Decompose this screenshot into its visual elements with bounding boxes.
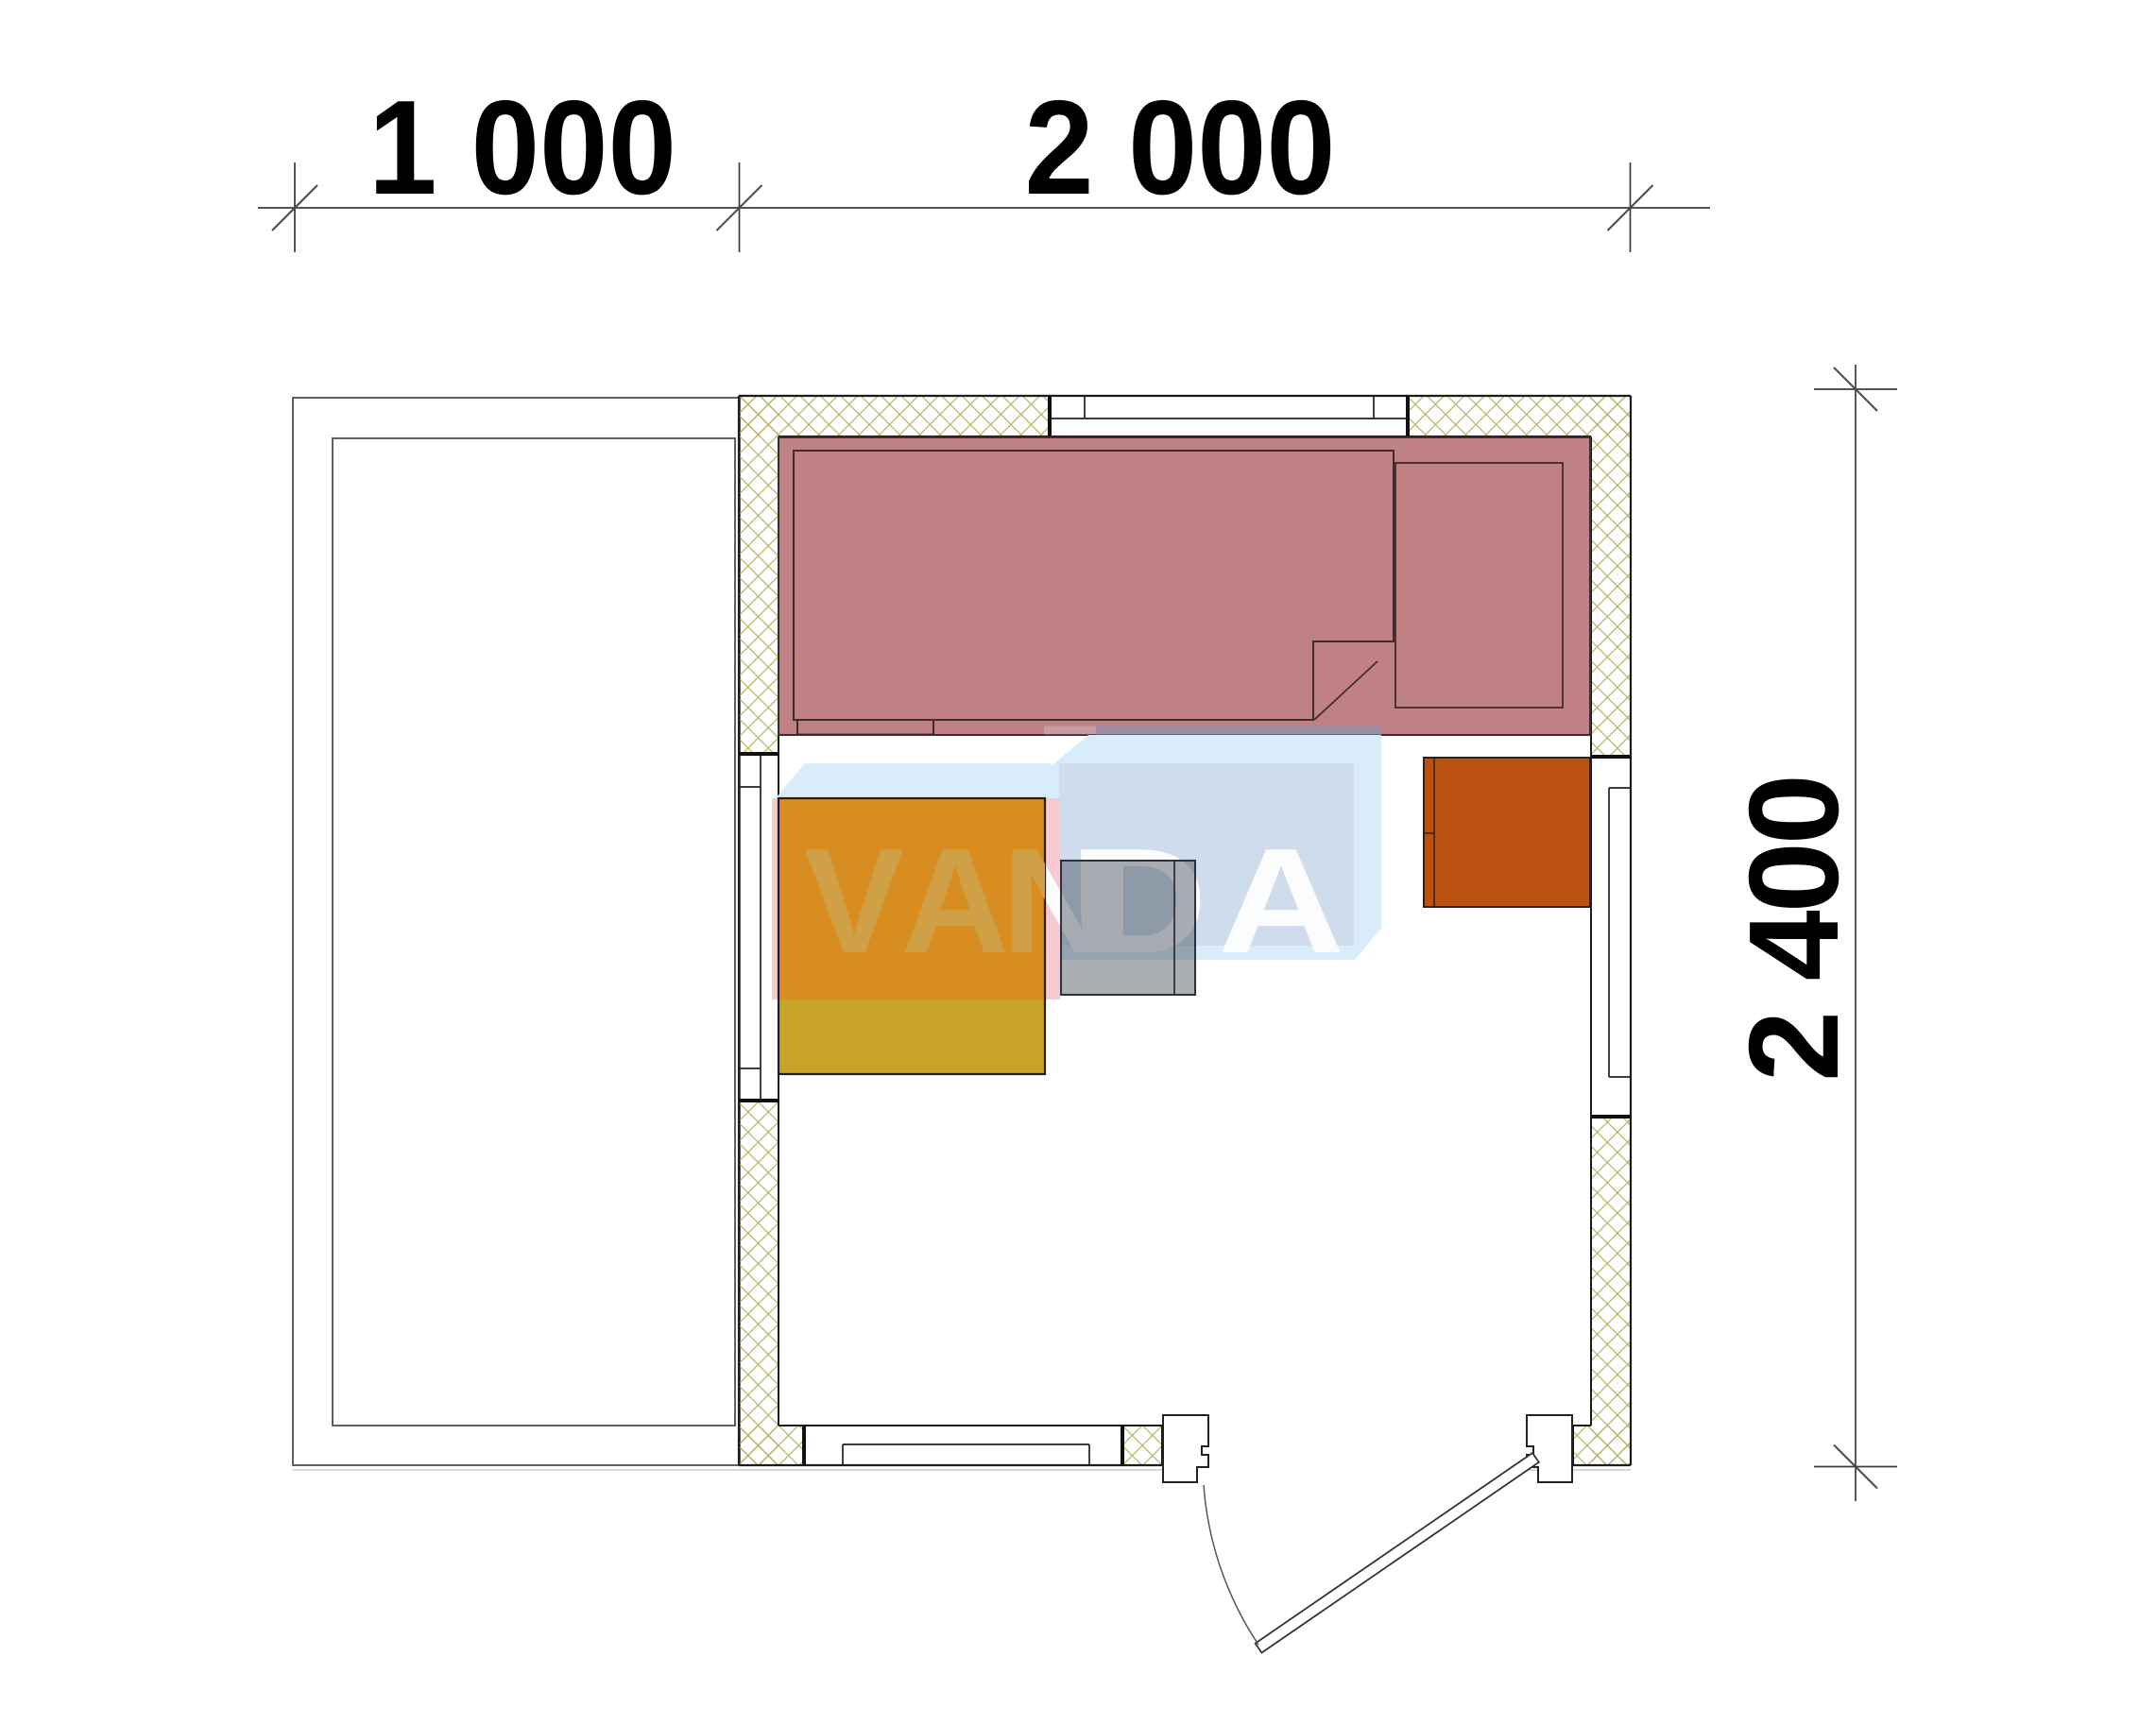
svg-text:V: V bbox=[804, 818, 903, 984]
svg-text:A: A bbox=[1218, 817, 1345, 983]
svg-text:2 000: 2 000 bbox=[1025, 73, 1336, 223]
svg-text:1 000: 1 000 bbox=[368, 73, 676, 223]
svg-text:A: A bbox=[901, 818, 1009, 984]
svg-text:2 400: 2 400 bbox=[1722, 777, 1865, 1082]
